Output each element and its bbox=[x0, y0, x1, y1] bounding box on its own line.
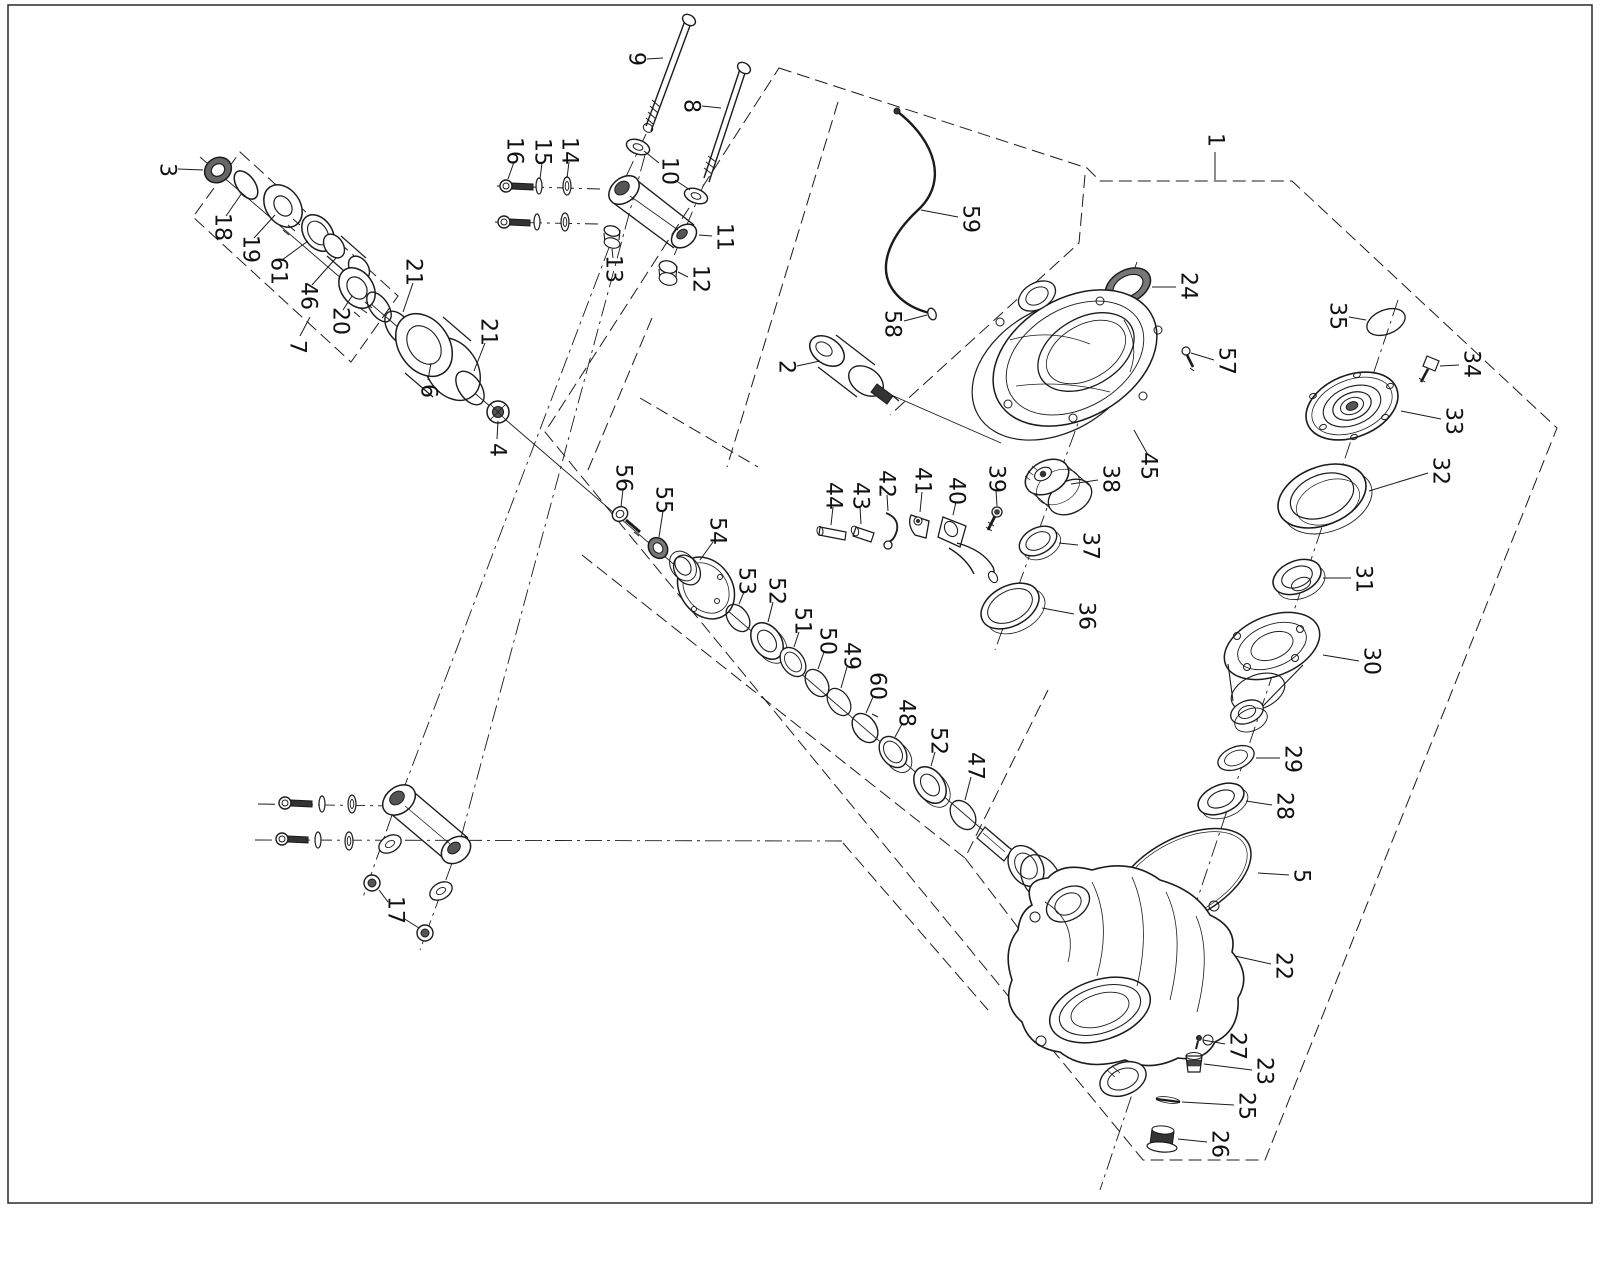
callout-29: 29 bbox=[1280, 745, 1305, 773]
part-23-plug-path bbox=[1187, 1060, 1201, 1066]
callout-number-27: 27 bbox=[1225, 1032, 1250, 1060]
callout-1: 1 bbox=[1203, 133, 1228, 147]
callout-54: 54 bbox=[705, 517, 730, 545]
callout-51: 51 bbox=[790, 607, 815, 635]
callout-number-52: 52 bbox=[764, 577, 789, 605]
callout-34: 34 bbox=[1459, 350, 1484, 378]
callout-number-47: 47 bbox=[963, 752, 988, 780]
callout-number-12: 12 bbox=[688, 265, 713, 293]
callout-28: 28 bbox=[1272, 792, 1297, 820]
part-17-nuts-circle bbox=[368, 879, 376, 887]
callout-14: 14 bbox=[557, 137, 582, 165]
callout-number-37: 37 bbox=[1078, 532, 1103, 560]
callout-45: 45 bbox=[1136, 452, 1161, 480]
callout-number-1: 1 bbox=[1203, 133, 1228, 147]
callout-number-19: 19 bbox=[238, 235, 263, 263]
callout-59: 59 bbox=[958, 205, 983, 233]
callout-36: 36 bbox=[1074, 602, 1099, 630]
callout-number-17: 17 bbox=[383, 896, 408, 924]
callout-number-30: 30 bbox=[1359, 647, 1384, 675]
callout-15: 15 bbox=[530, 138, 555, 166]
callout-number-36: 36 bbox=[1074, 602, 1099, 630]
part-15-washers-bottom-ellipse bbox=[315, 832, 321, 848]
callout-52: 52 bbox=[926, 727, 951, 755]
callout-number-32: 32 bbox=[1428, 457, 1453, 485]
part-16-bolts-top-path bbox=[512, 183, 533, 190]
callout-number-24: 24 bbox=[1176, 272, 1201, 300]
callout-35: 35 bbox=[1325, 302, 1350, 330]
part-14-washers-bottom-ellipse bbox=[345, 832, 353, 850]
callout-22: 22 bbox=[1271, 952, 1296, 980]
part-15-washers-bottom-ellipse bbox=[319, 796, 325, 812]
callout-number-33: 33 bbox=[1441, 407, 1466, 435]
callout-number-42: 42 bbox=[874, 470, 899, 498]
part-14-washers-top-ellipse bbox=[563, 177, 571, 195]
callout-number-20: 20 bbox=[328, 307, 353, 335]
callout-number-22: 22 bbox=[1271, 952, 1296, 980]
callout-56: 56 bbox=[611, 464, 636, 492]
part-16-bolts-top-path bbox=[510, 219, 530, 226]
callout-50: 50 bbox=[815, 627, 840, 655]
callout-4: 4 bbox=[485, 443, 510, 457]
part-23-plug bbox=[1186, 1053, 1202, 1073]
callout-49: 49 bbox=[839, 642, 864, 670]
callout-number-38: 38 bbox=[1098, 465, 1123, 493]
part-16-bolts-bottom-circle bbox=[276, 833, 288, 845]
part-16-bolts-bottom-path bbox=[288, 836, 308, 843]
part-16-bolts-top-circle bbox=[500, 180, 512, 192]
callout-number-29: 29 bbox=[1280, 745, 1305, 773]
callout-55: 55 bbox=[651, 486, 676, 514]
callout-number-26: 26 bbox=[1207, 1130, 1232, 1158]
part-16-bolts-bottom-circle bbox=[279, 797, 291, 809]
callout-17: 17 bbox=[383, 896, 408, 924]
callout-number-58: 58 bbox=[880, 310, 905, 338]
callout-number-40: 40 bbox=[944, 477, 969, 505]
callout-43: 43 bbox=[848, 482, 873, 510]
callout-20: 20 bbox=[328, 307, 353, 335]
callout-number-61: 61 bbox=[266, 257, 291, 285]
callout-7: 7 bbox=[285, 340, 310, 354]
callout-52: 52 bbox=[764, 577, 789, 605]
callout-number-4: 4 bbox=[485, 443, 510, 457]
callout-21: 21 bbox=[476, 318, 501, 346]
part-15-washers-top-ellipse bbox=[536, 178, 542, 194]
part-14-washers-bottom-ellipse bbox=[348, 795, 356, 813]
callout-16: 16 bbox=[502, 137, 527, 165]
callout-number-13: 13 bbox=[601, 255, 626, 283]
callout-40: 40 bbox=[944, 477, 969, 505]
callout-9: 9 bbox=[624, 52, 649, 66]
callout-number-59: 59 bbox=[958, 205, 983, 233]
part-17-nuts-circle bbox=[421, 929, 429, 937]
callout-60: 60 bbox=[865, 672, 890, 700]
callout-42: 42 bbox=[874, 470, 899, 498]
callout-number-35: 35 bbox=[1325, 302, 1350, 330]
callout-number-43: 43 bbox=[848, 482, 873, 510]
callout-38: 38 bbox=[1098, 465, 1123, 493]
callout-5: 5 bbox=[1289, 869, 1314, 883]
callout-number-60: 60 bbox=[865, 672, 890, 700]
callout-number-41: 41 bbox=[910, 467, 935, 495]
callout-10: 10 bbox=[657, 157, 682, 185]
callout-number-53: 53 bbox=[734, 567, 759, 595]
callout-2: 2 bbox=[774, 360, 799, 374]
part-39-screw-circle bbox=[995, 510, 1000, 515]
callout-47: 47 bbox=[963, 752, 988, 780]
callout-12: 12 bbox=[688, 265, 713, 293]
callout-number-57: 57 bbox=[1214, 347, 1239, 375]
callout-number-3: 3 bbox=[155, 163, 180, 177]
part-14-washers-top-ellipse bbox=[561, 213, 569, 231]
callout-number-34: 34 bbox=[1459, 350, 1484, 378]
callout-48: 48 bbox=[894, 699, 919, 727]
callout-24: 24 bbox=[1176, 272, 1201, 300]
callout-number-15: 15 bbox=[530, 138, 555, 166]
callout-39: 39 bbox=[984, 465, 1009, 493]
callout-41: 41 bbox=[910, 467, 935, 495]
callout-6: 6 bbox=[416, 384, 441, 398]
callout-number-48: 48 bbox=[894, 699, 919, 727]
part-15-washers-top-ellipse bbox=[534, 214, 540, 230]
exploded-parts-diagram: 1234567891011121314151617181920212122232… bbox=[0, 0, 1600, 1280]
callout-13: 13 bbox=[601, 255, 626, 283]
callout-number-31: 31 bbox=[1351, 565, 1376, 593]
callout-number-21: 21 bbox=[401, 258, 426, 286]
callout-21: 21 bbox=[401, 258, 426, 286]
part-42-spring-wire-circle bbox=[884, 541, 892, 549]
callout-53: 53 bbox=[734, 567, 759, 595]
callout-number-10: 10 bbox=[657, 157, 682, 185]
callout-number-8: 8 bbox=[679, 99, 704, 113]
callout-number-2: 2 bbox=[774, 360, 799, 374]
callout-18: 18 bbox=[210, 213, 235, 241]
part-59-hose-circle bbox=[894, 108, 900, 114]
callout-number-54: 54 bbox=[705, 517, 730, 545]
callout-number-51: 51 bbox=[790, 607, 815, 635]
callout-number-7: 7 bbox=[285, 340, 310, 354]
callout-number-25: 25 bbox=[1234, 1092, 1259, 1120]
callout-number-9: 9 bbox=[624, 52, 649, 66]
part-27-screw-circle bbox=[1197, 1036, 1202, 1041]
callout-number-45: 45 bbox=[1136, 452, 1161, 480]
callout-number-49: 49 bbox=[839, 642, 864, 670]
callout-57: 57 bbox=[1214, 347, 1239, 375]
callout-37: 37 bbox=[1078, 532, 1103, 560]
part-4-nut bbox=[487, 401, 509, 423]
callout-number-21: 21 bbox=[476, 318, 501, 346]
part-16-bolts-top-circle bbox=[498, 216, 510, 228]
callout-number-16: 16 bbox=[502, 137, 527, 165]
callout-32: 32 bbox=[1428, 457, 1453, 485]
part-16-bolts-bottom-path bbox=[291, 800, 312, 807]
callout-26: 26 bbox=[1207, 1130, 1232, 1158]
callout-30: 30 bbox=[1359, 647, 1384, 675]
callout-19: 19 bbox=[238, 235, 263, 263]
callout-number-28: 28 bbox=[1272, 792, 1297, 820]
callout-3: 3 bbox=[155, 163, 180, 177]
callout-number-11: 11 bbox=[712, 223, 737, 251]
callout-number-52: 52 bbox=[926, 727, 951, 755]
callout-number-39: 39 bbox=[984, 465, 1009, 493]
callout-8: 8 bbox=[679, 99, 704, 113]
callout-33: 33 bbox=[1441, 407, 1466, 435]
callout-44: 44 bbox=[821, 482, 846, 510]
part-38-clutch-hub-circle bbox=[1040, 471, 1046, 477]
callout-number-44: 44 bbox=[821, 482, 846, 510]
callout-number-14: 14 bbox=[557, 137, 582, 165]
callout-number-18: 18 bbox=[210, 213, 235, 241]
callout-number-55: 55 bbox=[651, 486, 676, 514]
part-57-screw-circle bbox=[1182, 347, 1190, 355]
callout-31: 31 bbox=[1351, 565, 1376, 593]
part-41-lever-circle bbox=[916, 519, 920, 523]
callout-23: 23 bbox=[1252, 1057, 1277, 1085]
callout-number-50: 50 bbox=[815, 627, 840, 655]
callout-number-6: 6 bbox=[416, 384, 441, 398]
callout-46: 46 bbox=[296, 282, 321, 310]
callout-number-46: 46 bbox=[296, 282, 321, 310]
callout-25: 25 bbox=[1234, 1092, 1259, 1120]
callout-58: 58 bbox=[880, 310, 905, 338]
callout-number-23: 23 bbox=[1252, 1057, 1277, 1085]
callout-11: 11 bbox=[712, 223, 737, 251]
callout-number-5: 5 bbox=[1289, 869, 1314, 883]
callout-number-56: 56 bbox=[611, 464, 636, 492]
callout-27: 27 bbox=[1225, 1032, 1250, 1060]
callout-61: 61 bbox=[266, 257, 291, 285]
